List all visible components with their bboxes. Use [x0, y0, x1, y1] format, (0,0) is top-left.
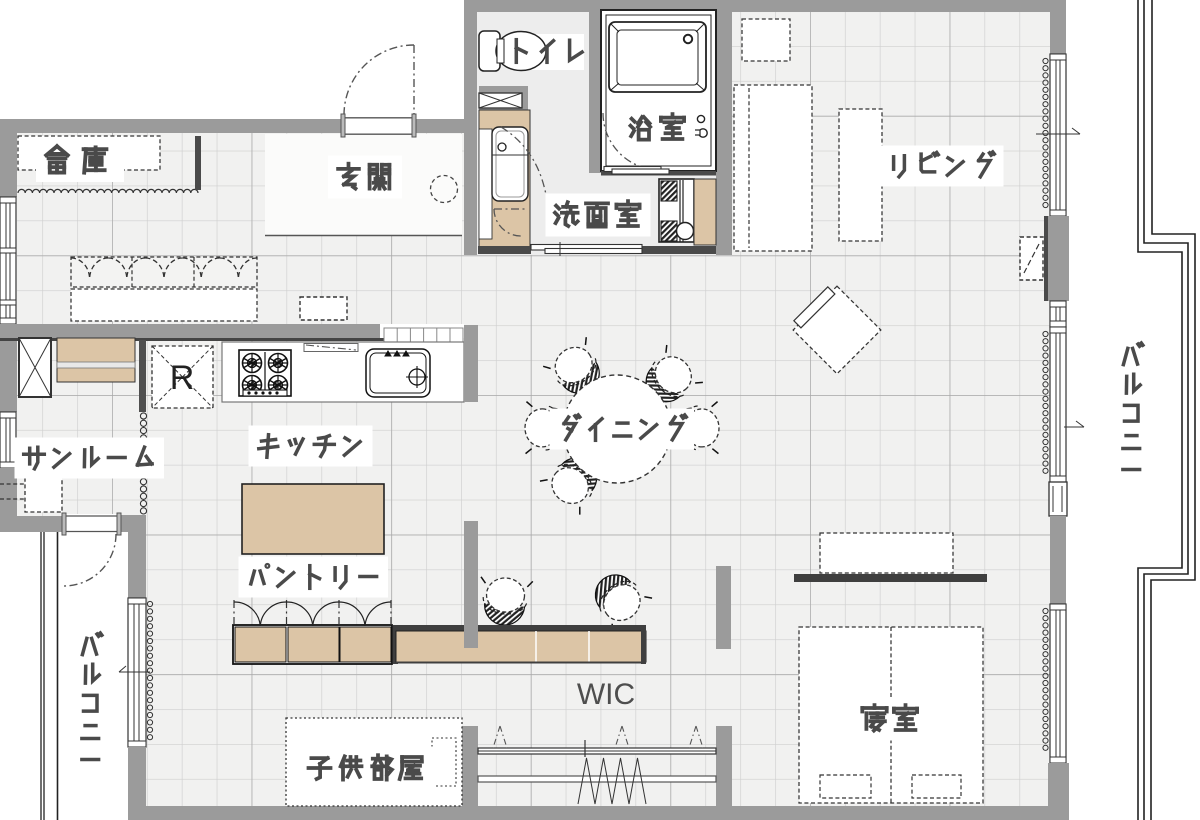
- svg-text:WIC: WIC: [577, 678, 635, 711]
- svg-text:R: R: [170, 359, 195, 397]
